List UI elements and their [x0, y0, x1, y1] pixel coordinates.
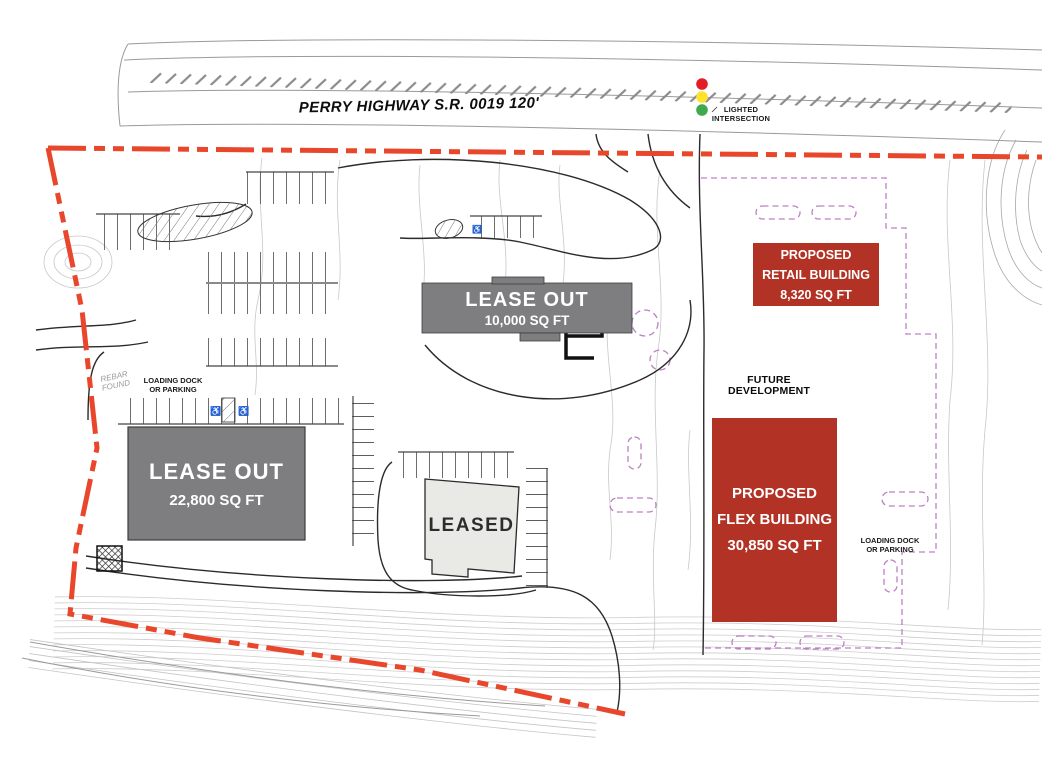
accessible-parking-icon: ♿ [210, 405, 221, 416]
building-leased [425, 479, 519, 577]
building-proposed-flex [712, 418, 837, 622]
bottom-slope-contours [52, 593, 1041, 707]
signal-leader-line [712, 107, 717, 112]
site-plan: ♿ ♿ ♿ [0, 0, 1042, 768]
highway-median-hatch [150, 72, 1012, 113]
building-lease-out-22800 [128, 427, 305, 540]
accessible-parking-icon: ♿ [238, 405, 249, 416]
signal-red-light [696, 78, 708, 90]
dumpster-pad [97, 546, 122, 571]
building-proposed-retail [753, 243, 879, 306]
building-lease-out-10000 [422, 283, 632, 333]
building-lease-out-10000-tab [520, 333, 560, 341]
site-linework-svg: ♿ ♿ ♿ [0, 0, 1042, 768]
signal-green-light [696, 104, 708, 116]
signal-yellow-light [696, 91, 708, 103]
accessible-parking-icon: ♿ [472, 224, 482, 234]
building-lease-out-10000-tab [492, 277, 544, 284]
